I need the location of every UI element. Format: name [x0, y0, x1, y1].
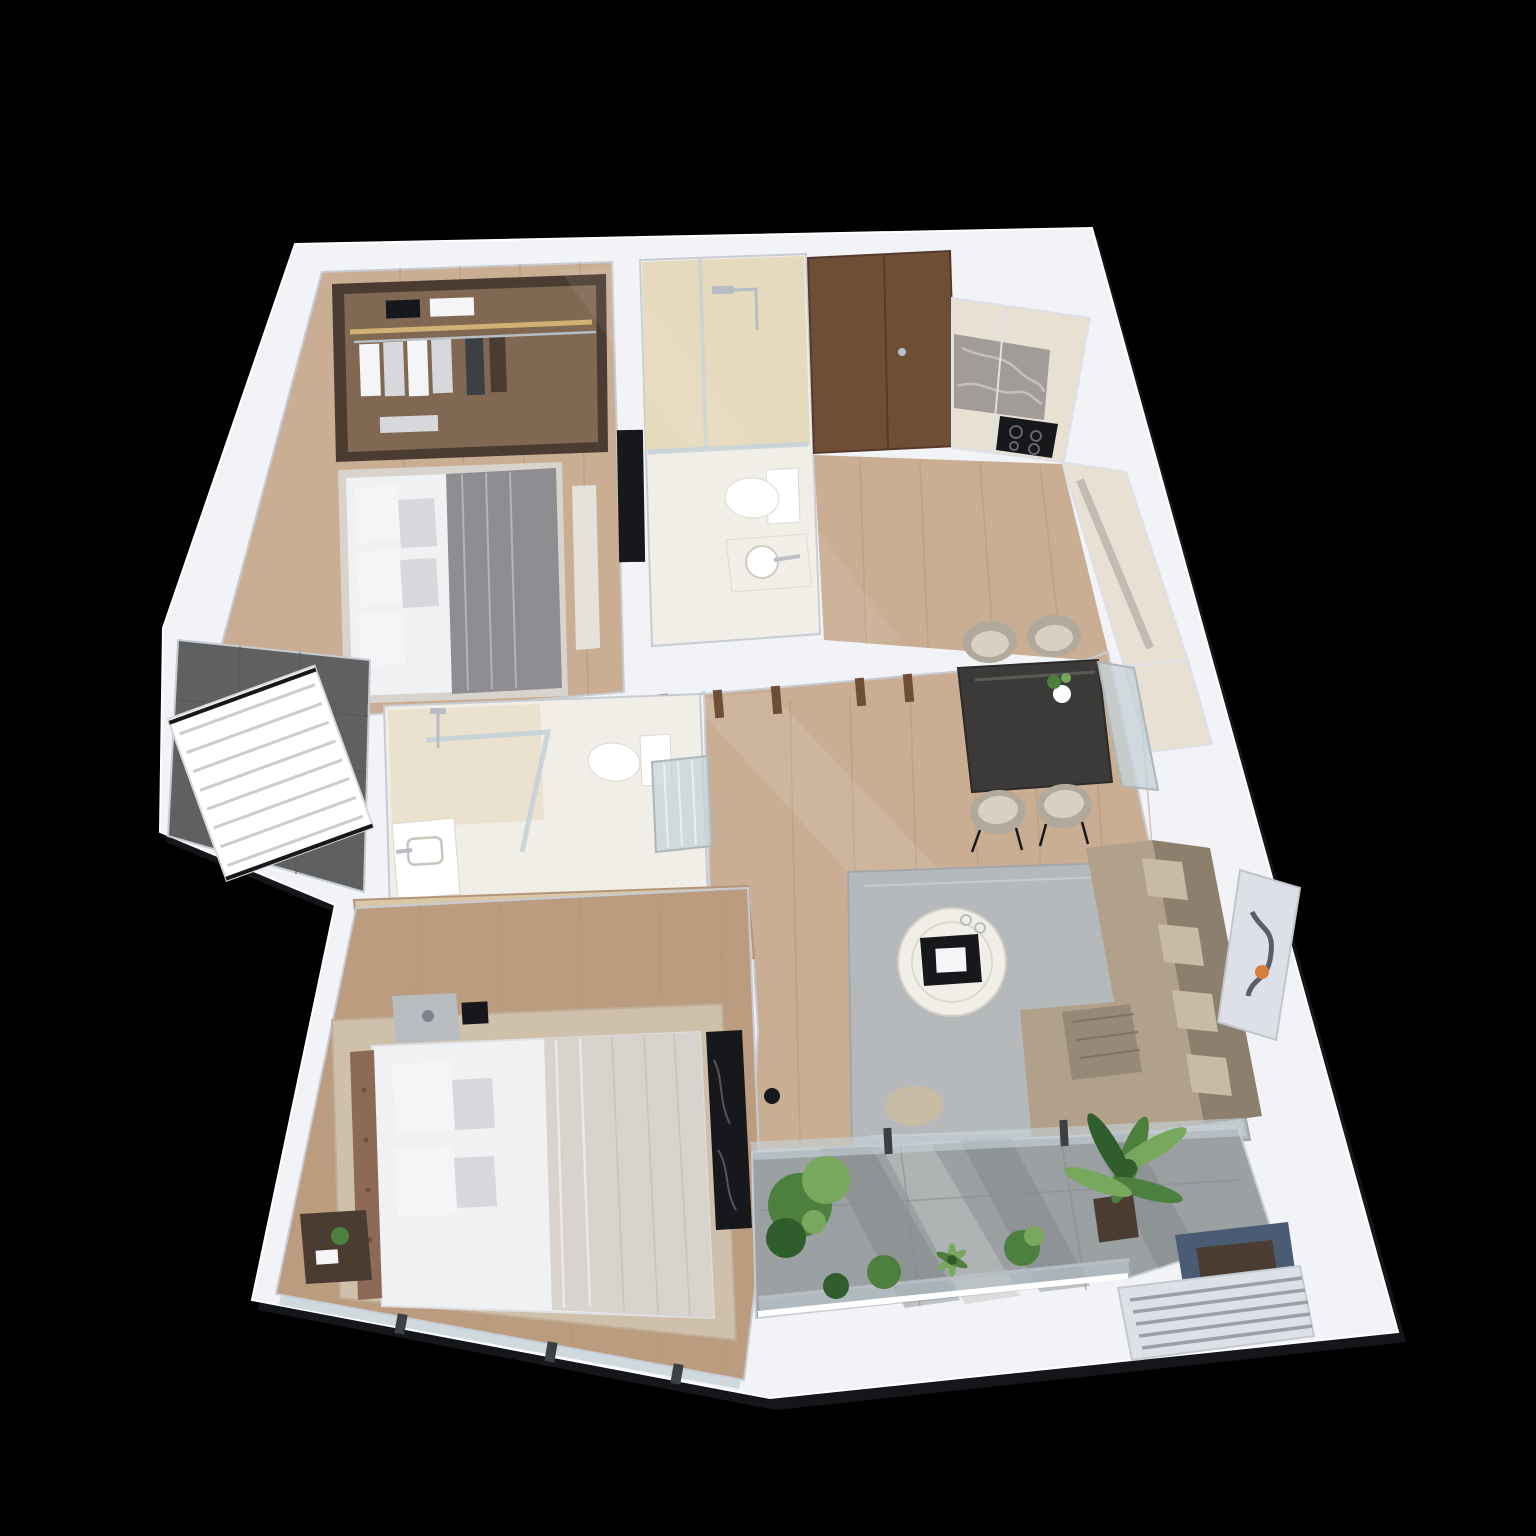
- bathroom-2-shower-zone: [388, 704, 544, 828]
- vanity-2-faucet: [396, 850, 412, 852]
- room-bedroom-2: [276, 888, 762, 1385]
- vanity-2: [392, 818, 460, 900]
- entry-door-handle: [898, 348, 906, 356]
- wardrobe-shelf-linen: [430, 297, 475, 317]
- bedroom-1-tv: [617, 430, 645, 562]
- tray-book: [935, 947, 966, 973]
- nightstand-plant: [300, 1210, 372, 1284]
- room-bathroom-2: [384, 694, 712, 912]
- folded-clothes: [380, 415, 439, 433]
- bed-1: [338, 462, 600, 704]
- bed-2: [350, 1032, 714, 1318]
- leafy-plant: [867, 1255, 901, 1289]
- fern-plant: [823, 1273, 849, 1299]
- small-plant: [331, 1227, 349, 1245]
- bed-1-bench: [572, 485, 600, 650]
- apartment-3d-floor-plan: [0, 0, 1536, 1536]
- vanity-2-counter: [392, 818, 460, 900]
- sliding-glass-door: [652, 756, 712, 852]
- pendant-lamp: [764, 1088, 780, 1104]
- coffee-table: [898, 908, 1006, 1016]
- entry-door: [808, 251, 956, 453]
- wardrobe-shelf-box: [386, 299, 421, 318]
- bed-2-blanket: [544, 1032, 714, 1318]
- floor-plan-canvas: [0, 0, 1536, 1536]
- nightstand-box: [461, 1001, 488, 1024]
- wardrobe-1: [332, 274, 608, 462]
